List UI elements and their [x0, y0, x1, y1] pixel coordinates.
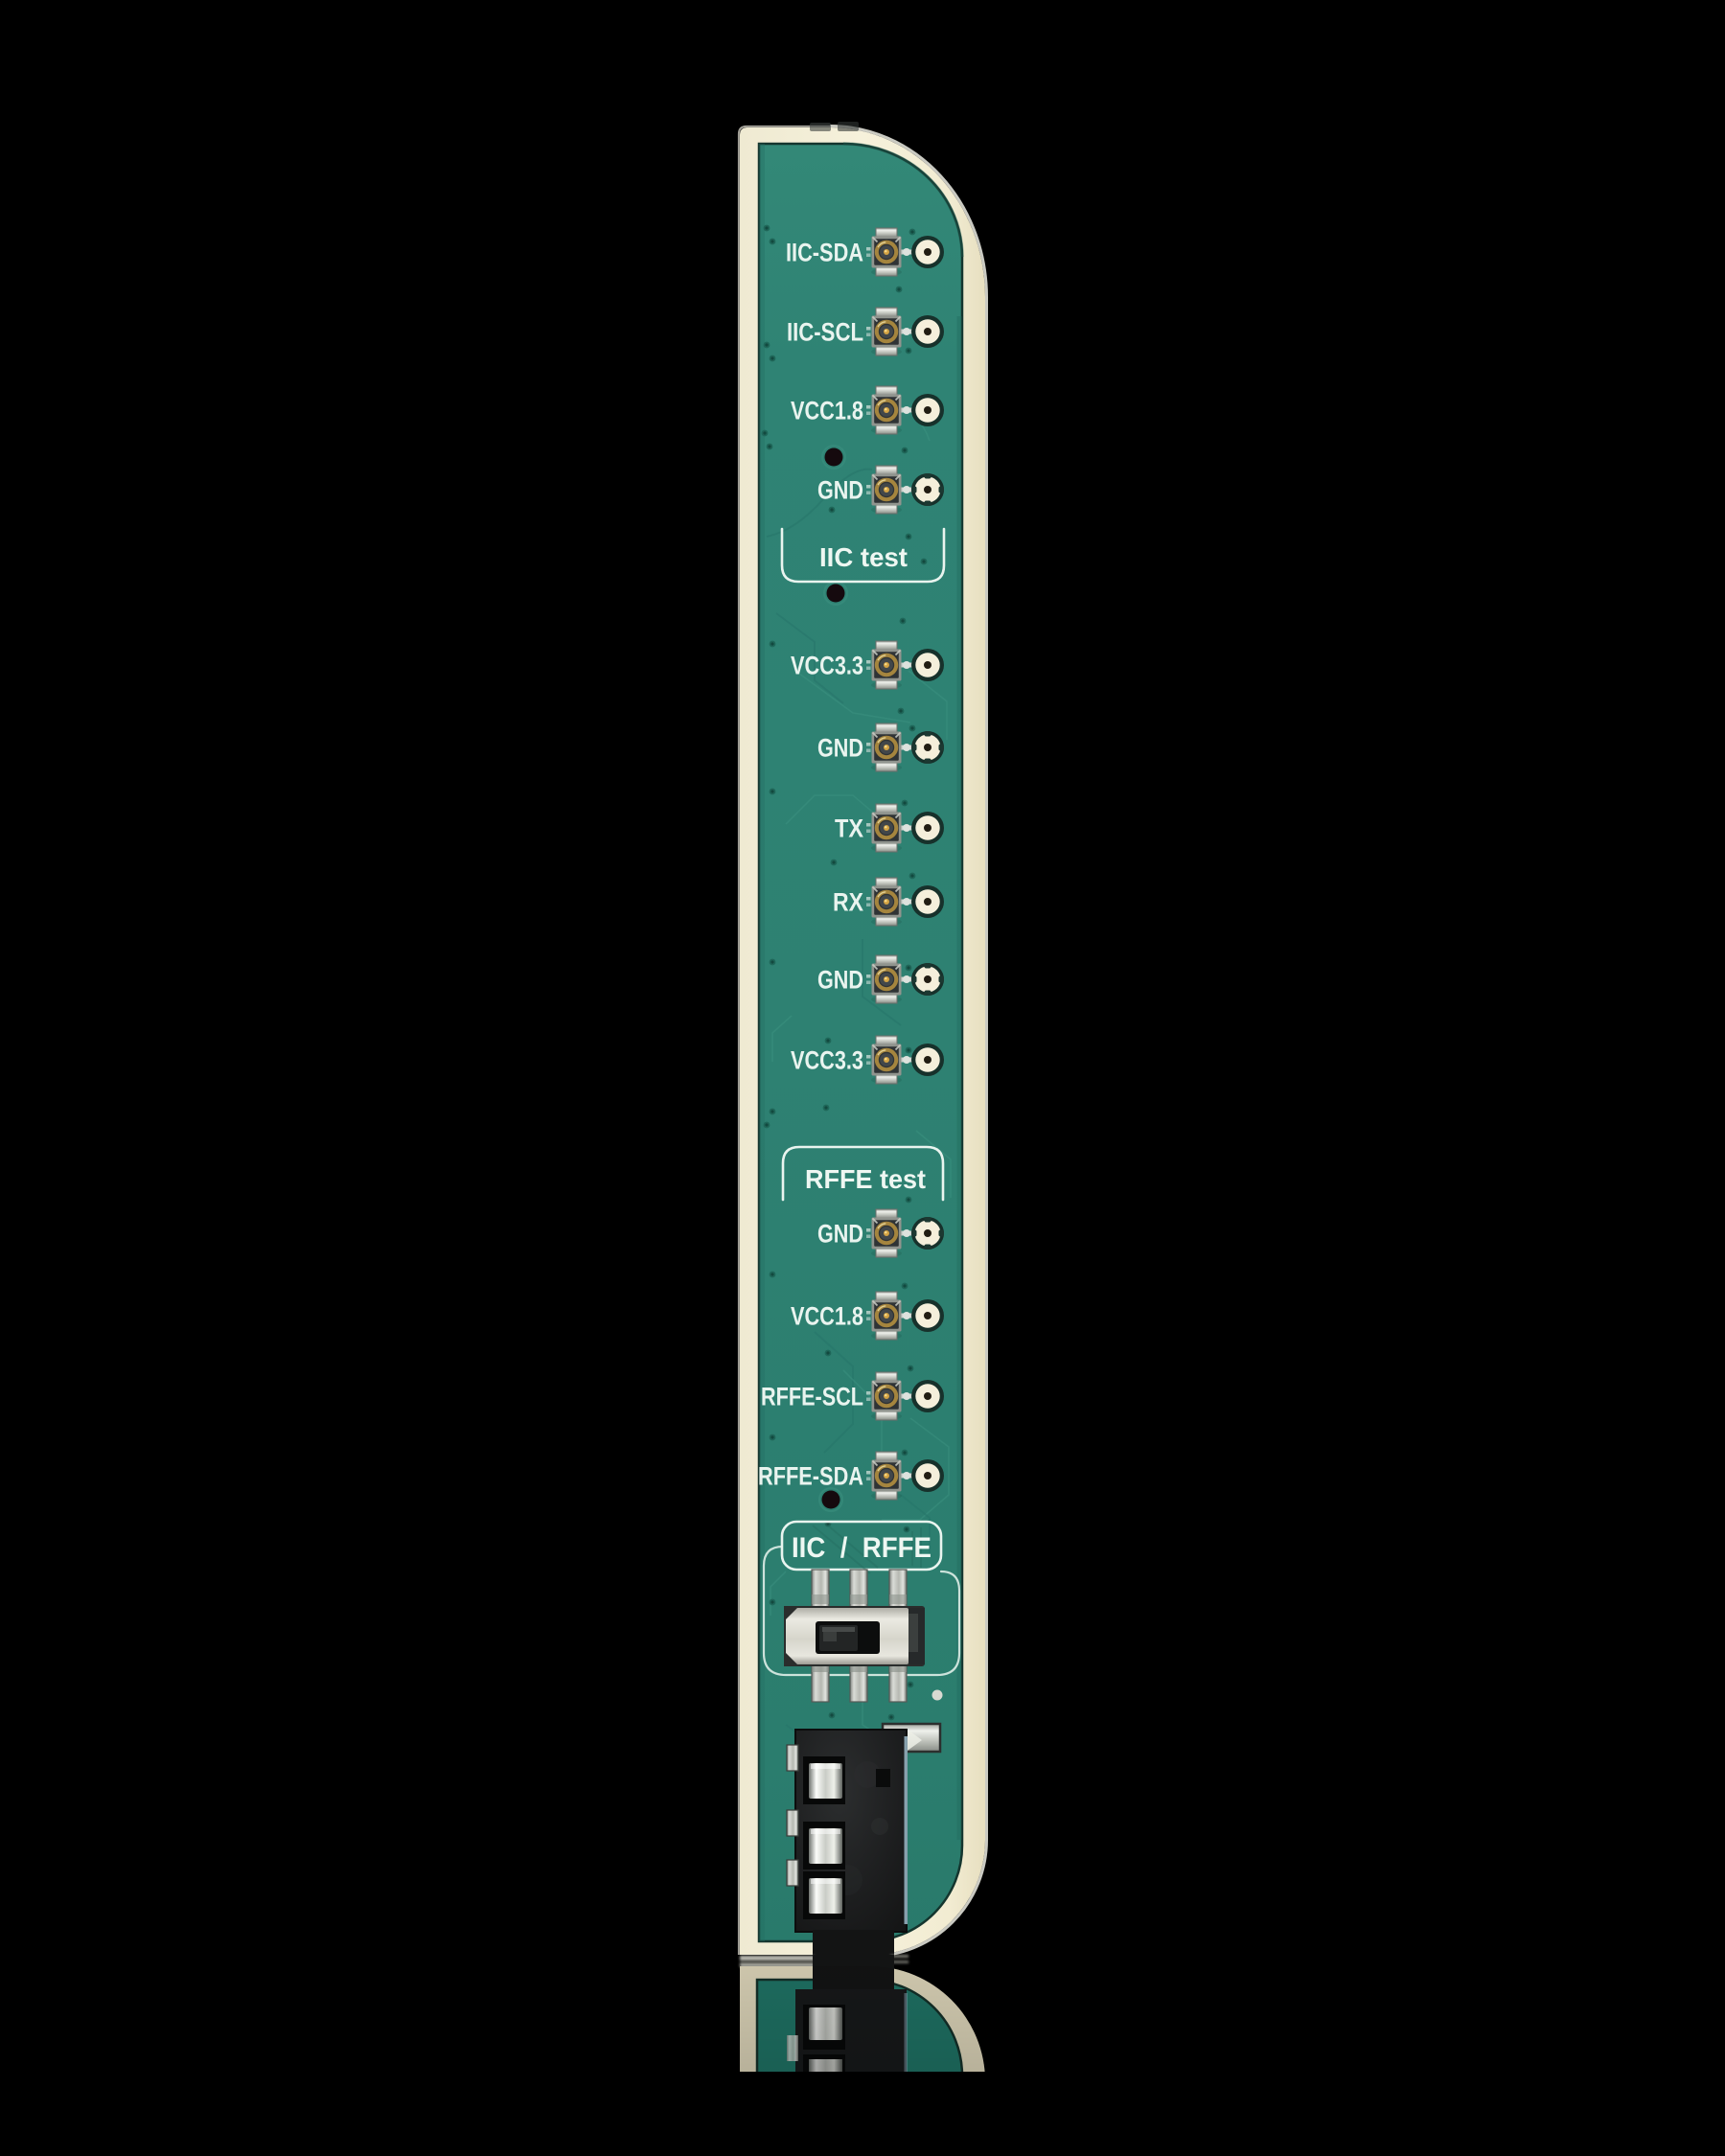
- svg-text:GND: GND: [817, 1220, 863, 1249]
- svg-text:IIC / RFFE: IIC / RFFE: [792, 1532, 931, 1564]
- svg-text:TX: TX: [835, 814, 863, 843]
- svg-text:VCC1.8: VCC1.8: [791, 397, 863, 425]
- svg-text:IIC-SDA: IIC-SDA: [786, 239, 863, 267]
- svg-text:RFFE-SDA: RFFE-SDA: [758, 1462, 863, 1491]
- svg-text:RFFE-SCL: RFFE-SCL: [761, 1383, 863, 1411]
- svg-text:GND: GND: [817, 476, 863, 505]
- svg-text:VCC3.3: VCC3.3: [791, 652, 863, 680]
- svg-text:GND: GND: [817, 966, 863, 995]
- svg-text:VCC3.3: VCC3.3: [791, 1046, 863, 1075]
- svg-text:RFFE test: RFFE test: [805, 1164, 926, 1194]
- svg-text:IIC test: IIC test: [819, 542, 908, 572]
- svg-text:GND: GND: [817, 734, 863, 763]
- svg-text:IIC-SCL: IIC-SCL: [787, 318, 863, 347]
- svg-text:VCC1.8: VCC1.8: [791, 1302, 863, 1331]
- svg-text:RX: RX: [833, 888, 863, 917]
